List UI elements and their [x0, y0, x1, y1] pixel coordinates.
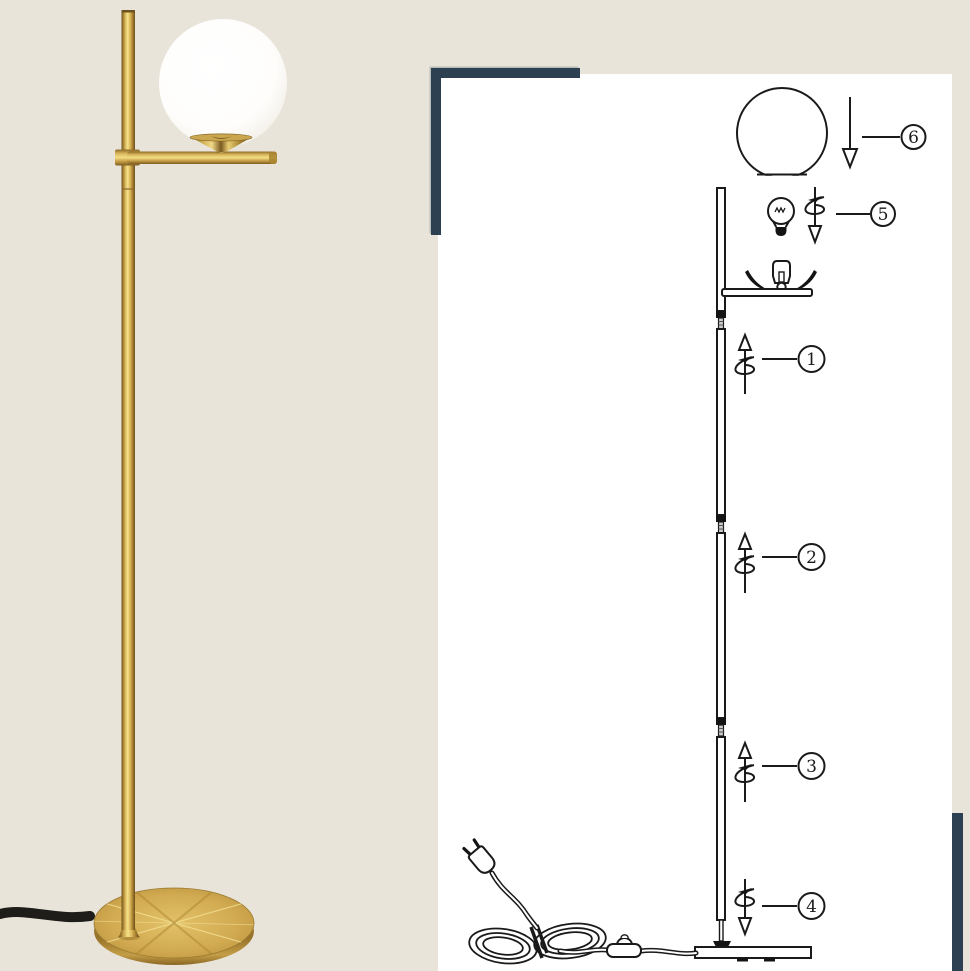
- screw-down-icon-4: [735, 879, 754, 934]
- arrow-down-icon: [843, 97, 857, 167]
- pole-bottom-stub: [720, 920, 724, 941]
- screw-up-icon-3: [735, 743, 754, 802]
- diagram-cord: [492, 873, 696, 954]
- step-6-badge: 6: [862, 125, 926, 149]
- bulb-icon: [768, 198, 794, 236]
- connector-joint-1: [716, 311, 726, 329]
- product-listing-image: 1 2 3 4 5 6: [0, 0, 970, 971]
- step-1-badge: 1: [762, 346, 825, 372]
- step-5-badge: 5: [836, 202, 895, 226]
- pole-segment-4: [717, 737, 725, 920]
- step-1-label: 1: [806, 350, 817, 370]
- screw-up-icon-2: [735, 534, 754, 593]
- base-plate: [695, 947, 811, 962]
- step-2-badge: 2: [762, 544, 825, 570]
- screw-down-icon: [805, 187, 824, 242]
- connector-joint-3: [716, 718, 726, 736]
- screw-up-icon-1: [735, 335, 754, 394]
- power-plug: [461, 837, 498, 876]
- pole-segment-1: [717, 188, 812, 311]
- step-4-label: 4: [806, 897, 817, 917]
- step-6-label: 6: [908, 128, 919, 148]
- step-5-label: 5: [878, 205, 889, 225]
- pole-segment-3: [717, 533, 725, 718]
- step-2-label: 2: [806, 548, 817, 568]
- diagram-arm: [722, 289, 812, 296]
- foot-switch: [607, 935, 641, 957]
- socket: [773, 261, 790, 291]
- step-3-badge: 3: [762, 753, 825, 779]
- step-3-label: 3: [806, 757, 817, 777]
- connector-joint-2: [716, 515, 726, 533]
- assembly-diagram: 1 2 3 4 5 6: [0, 0, 970, 971]
- diagram-globe-shade: [737, 88, 827, 184]
- pole-segment-2: [717, 329, 725, 515]
- step-4-badge: 4: [762, 893, 825, 919]
